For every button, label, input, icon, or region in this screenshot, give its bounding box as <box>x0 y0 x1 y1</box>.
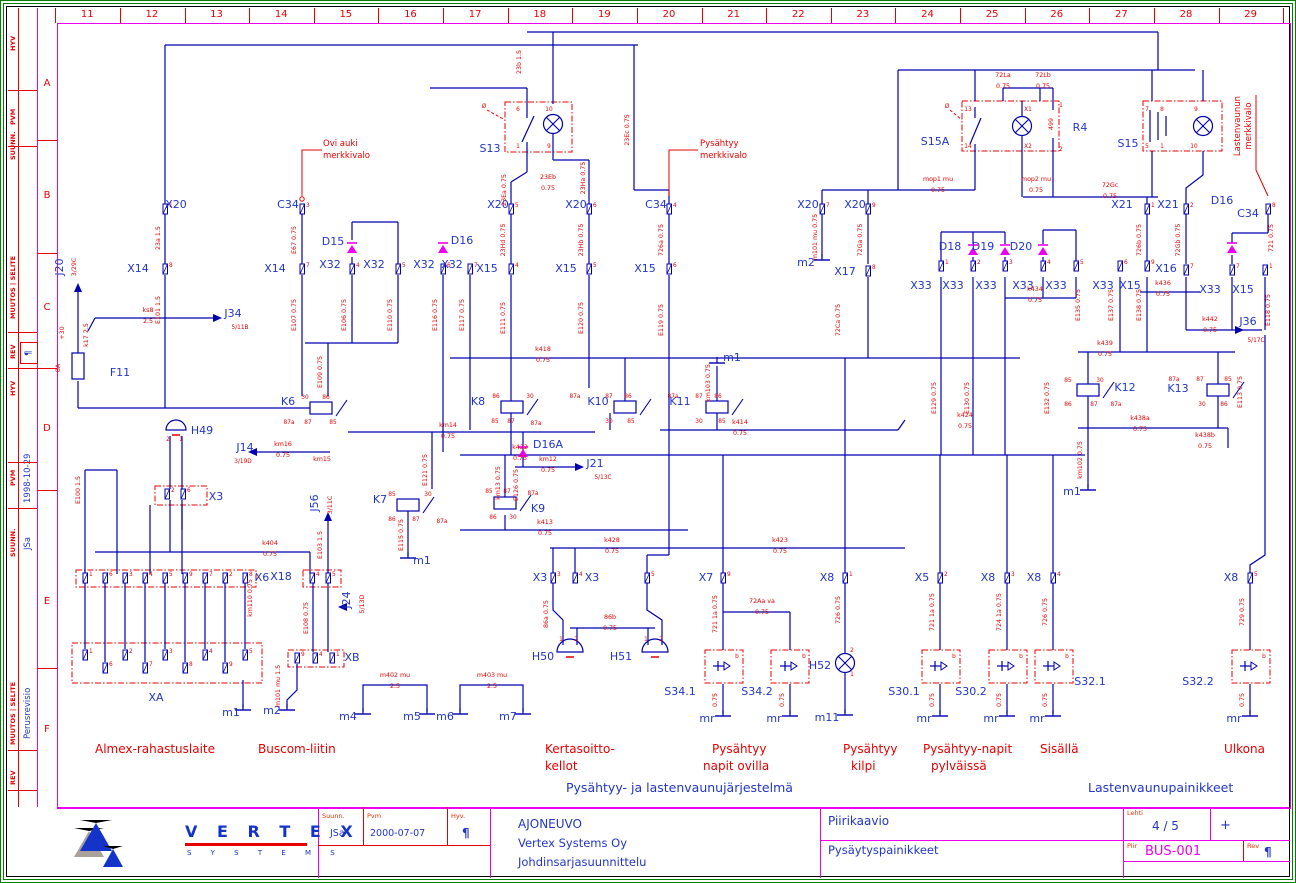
pin-number: 1 <box>1151 203 1155 209</box>
relay-name: K12 <box>1114 381 1135 394</box>
wire-label-rotated: 23Ha 0.75 <box>580 162 587 195</box>
wire-label-rotated: 0.75 <box>1042 693 1049 707</box>
wire-gauge: 0.75 <box>536 357 550 364</box>
wire-label-rotated: E110 0.75 <box>387 299 394 331</box>
pin-number: 9 <box>301 652 305 658</box>
pin-number: 4 <box>579 572 583 578</box>
pin-number: 8 <box>169 263 173 269</box>
pin-number: 4 <box>149 572 153 578</box>
pin-number: 3 <box>1009 260 1013 266</box>
pin-number: 1 <box>89 572 93 578</box>
tb-line <box>1210 807 1211 840</box>
pin-number: 5 <box>402 263 406 269</box>
tb-line <box>447 807 448 845</box>
relay-coil <box>1207 384 1229 396</box>
component-label: X5 <box>915 571 930 584</box>
component-label: X33 <box>942 279 964 292</box>
component-label: X18 <box>270 570 292 583</box>
relay-terminal: 87a <box>668 394 679 400</box>
relay-contact <box>732 399 743 415</box>
component-label: X3 <box>533 571 548 584</box>
pin-number: 4 <box>209 649 213 655</box>
relay-terminal: 87 <box>1196 377 1204 383</box>
wire-label-rotated: m101 mu 1.5 <box>275 665 282 707</box>
pushbutton-terminal: b <box>1019 654 1023 660</box>
wire-label-rotated: 0.75 <box>779 693 786 707</box>
component-label: D16 <box>1211 194 1233 207</box>
component-label: C34 <box>1237 207 1259 220</box>
piir-label: Piir <box>1127 842 1137 850</box>
wire-gauge: 0.75 <box>538 530 552 537</box>
relay-terminal: 86 <box>492 394 500 400</box>
annotation-caption-rotated: Lastenvaunun <box>1233 96 1243 156</box>
component-label: X20 <box>165 198 187 211</box>
relay-terminal: 85 <box>1064 378 1072 384</box>
pin-number: 7 <box>826 203 830 209</box>
doc-type: Piirikaavio <box>828 814 889 828</box>
pin-number: 6 <box>109 572 113 578</box>
terminal-number: X1 <box>1024 107 1032 113</box>
system-caption: Pysähtyy- ja lastenvaunujärjestelmä <box>566 780 793 795</box>
component-label: S32.1 <box>1074 675 1105 688</box>
wire-label-rotated: 3/29C <box>71 257 78 276</box>
relay-name: K13 <box>1167 382 1188 395</box>
pin-number: 1 <box>945 260 949 266</box>
component-label: X33 <box>910 279 932 292</box>
pushbutton-terminal: b <box>1065 654 1069 660</box>
wire-label-rotated: 23Ec 0.75 <box>624 114 631 145</box>
wire-label-rotated: E119 0.75 <box>658 304 665 336</box>
wire-name: k439 <box>1097 340 1113 347</box>
wire-label-rotated: 724 1a 0.75 <box>996 593 1003 631</box>
pin-number: 7 <box>1190 264 1194 270</box>
terminal-number: 6 <box>516 107 520 113</box>
wire-gauge: 0.75 <box>1036 83 1050 90</box>
component-label: X6 <box>255 571 270 584</box>
pin-number: 5 <box>1080 260 1084 266</box>
section-caption: Pysähtyy-napit <box>923 742 1012 756</box>
pin-number: 4 <box>1047 260 1051 266</box>
wire-label-rotated: E126 0.75 <box>513 469 520 501</box>
component-label: X8 <box>1224 571 1239 584</box>
pin-number: 2 <box>1190 203 1194 209</box>
pin-number: 2 <box>171 488 175 494</box>
relay-terminal: 87 <box>1090 402 1098 408</box>
pushbutton-terminal: b <box>802 654 806 660</box>
wire-label-rotated: E106 0.75 <box>341 299 348 331</box>
pin-number: 2 <box>944 572 948 578</box>
pin-number: 1 <box>89 649 93 655</box>
wire-gauge: 0.75 <box>605 548 619 555</box>
annotation-caption: merkkivalo <box>323 151 370 161</box>
pin-number: 9 <box>727 572 731 578</box>
pushbutton-head <box>1251 662 1257 670</box>
terminal-number: 1 <box>1059 103 1063 109</box>
wire-label-rotated: 721 0.75 <box>1268 224 1275 252</box>
component-label: D19 <box>972 240 994 253</box>
wire-label-rotated: 72Gb 0.75 <box>1175 224 1182 257</box>
wire-name: k422 <box>512 444 528 451</box>
jump-arrow <box>213 314 222 322</box>
ground-label: m4 <box>339 710 357 723</box>
component-label: XB <box>344 651 359 664</box>
component-dash-box <box>962 101 1059 151</box>
wire <box>511 172 527 182</box>
terminal-number: 1 <box>179 437 183 443</box>
relay-coil <box>1077 384 1099 396</box>
pin-number: 1 <box>336 652 340 658</box>
wire-label-rotated: 0.75 <box>1239 693 1246 707</box>
annotation-caption: Ovi auki <box>323 139 358 149</box>
pushbutton-terminal: b <box>952 654 956 660</box>
terminal-number: 7 <box>1145 107 1149 113</box>
pin-number: 4 <box>356 263 360 269</box>
relay-terminal: 86 <box>624 394 632 400</box>
ground-label: m1 <box>222 706 240 719</box>
relay-terminal: 86 <box>1064 402 1072 408</box>
relay-coil <box>501 401 523 413</box>
component-label: H50 <box>532 650 554 663</box>
wire-name: 86b <box>604 614 616 621</box>
company-line-3: Johdinsarjasuunnittelu <box>518 855 646 869</box>
annotation-caption: Pysähtyy <box>700 139 739 149</box>
terminal-number: 3/19D <box>234 459 252 465</box>
component-label: X15 <box>476 262 498 275</box>
diode-symbol <box>1038 247 1048 255</box>
leader-end-circle <box>300 197 304 201</box>
annotation-leader <box>669 150 698 196</box>
logo-sub-text: S Y S T E M S <box>187 849 343 857</box>
pvm-label: Pvm <box>367 812 381 820</box>
relay-terminal: 85 <box>1224 377 1232 383</box>
component-label: X32 <box>413 258 435 271</box>
lehti-label: Lehti <box>1127 809 1143 817</box>
ground-label: mr <box>983 712 999 725</box>
component-label-rotated: J56 <box>308 494 321 512</box>
piir-value: BUS-001 <box>1145 844 1201 859</box>
wire-label-rotated: 726 0.75 <box>835 596 842 624</box>
wire-label-rotated: 726a 0.75 <box>658 224 665 256</box>
pushbutton-terminal: b <box>735 654 739 660</box>
relay-coil <box>397 499 419 511</box>
relay-terminal: 86 <box>1220 402 1228 408</box>
tb-line <box>490 807 491 878</box>
terminal-number: 2 <box>850 648 854 654</box>
relay-terminal: 30 <box>1198 402 1206 408</box>
wire-gauge: 0.75 <box>541 185 555 192</box>
terminal-number: 10 <box>545 107 553 113</box>
component-label: X15 <box>634 262 656 275</box>
hyv-label: Hyv. <box>451 812 465 820</box>
wire-name: 72Gc <box>1102 182 1119 189</box>
wire-gauge: 0.75 <box>996 83 1010 90</box>
terminal-number: 9 <box>1194 107 1198 113</box>
relay-terminal: 85 <box>388 492 396 498</box>
pin-number: 9 <box>189 572 193 578</box>
component-label: X32 <box>441 258 463 271</box>
relay-contact <box>520 495 531 511</box>
terminal-number: 10 <box>1190 144 1198 150</box>
wire <box>522 116 534 142</box>
wire-label-rotated: 23Ea 0.75 <box>501 174 508 206</box>
component-label: X8 <box>820 571 835 584</box>
relay-terminal: 86 <box>714 394 722 400</box>
relay-terminal: 87a <box>437 519 448 525</box>
actuator-leader <box>950 110 962 120</box>
wire-name: m403 mu <box>477 672 507 679</box>
suunn-label: Suunn. <box>322 812 345 820</box>
component-label: H51 <box>610 650 632 663</box>
pin-number: 2 <box>229 572 233 578</box>
relay-terminal: 87 <box>605 394 613 400</box>
section-caption: Pysähtyy <box>843 742 897 756</box>
wire <box>553 583 563 645</box>
pin-number: 5 <box>332 572 336 578</box>
wire-name: k414 <box>732 419 748 426</box>
annotation-caption: merkkivalo <box>700 151 747 161</box>
wire-gauge: 0.75 <box>1156 291 1170 298</box>
component-label: D15 <box>322 235 344 248</box>
wire-label-rotated: m101 mu 0.75 <box>812 214 819 260</box>
pin-number: 7 <box>149 662 153 668</box>
pushbutton-head <box>791 662 797 670</box>
pin-number: 3 <box>169 649 173 655</box>
wire-name: mop1 mu <box>923 176 953 183</box>
wire-label-rotated: E101 1.5 <box>155 296 162 324</box>
schematic-canvas: 1356479128874567456812345697712616345972… <box>0 0 1296 883</box>
relay-coil <box>310 402 332 414</box>
system-caption: Lastenvaunupainikkeet <box>1088 780 1233 795</box>
wire-gauge: 0.75 <box>931 187 945 194</box>
component-label: J34 <box>223 307 241 320</box>
jump-arrow <box>74 283 82 292</box>
pin-number: 8 <box>872 265 876 271</box>
component-label: X20 <box>844 198 866 211</box>
wire-label-rotated: 0.75 <box>712 693 719 707</box>
component-label: X32 <box>319 258 341 271</box>
section-caption: Ulkona <box>1224 742 1265 756</box>
component-label: S34.2 <box>741 685 772 698</box>
component-label: D20 <box>1010 240 1032 253</box>
tb-line <box>318 807 319 878</box>
pin-number: 4 <box>515 263 519 269</box>
ground-label: m1 <box>723 351 741 364</box>
company-line-1: AJONEUVO <box>518 817 582 831</box>
wire-name: k424 <box>957 412 973 419</box>
wire-name: k418 <box>535 346 551 353</box>
wire-label-rotated: E113 0.75 <box>1237 376 1244 408</box>
wire <box>647 583 662 645</box>
annotation-leader <box>302 150 322 196</box>
ground-label: mr <box>916 712 932 725</box>
section-caption: Kertasoitto- <box>545 742 615 756</box>
relay-terminal: 87 <box>503 489 511 495</box>
pin-number: 8 <box>249 572 253 578</box>
pushbutton-head <box>724 662 730 670</box>
component-label: J14 <box>235 441 253 454</box>
pin-number: 6 <box>1124 260 1128 266</box>
actuator-leader <box>487 110 505 120</box>
component-label: S13 <box>480 142 501 155</box>
terminal-number: 1 <box>1160 144 1164 150</box>
terminal-number: 2 <box>659 637 663 643</box>
logo-triangle-small <box>103 846 123 867</box>
ground-label: mr <box>766 712 782 725</box>
wire-label-rotated: 23a 1.5 <box>155 226 162 250</box>
wire-name: k428 <box>604 537 620 544</box>
component-label: R4 <box>1073 121 1088 134</box>
wire-label-rotated: 499 <box>1048 118 1055 130</box>
wire-label-rotated: E120 0.75 <box>578 302 585 334</box>
doc-title: Pysäytyspainikkeet <box>828 843 939 857</box>
pin-number: 4 <box>1057 572 1061 578</box>
wire-label-rotated: E103 1.5 <box>317 531 324 559</box>
ground-label: m11 <box>815 711 840 724</box>
wire-label-rotated: E116 0.75 <box>432 299 439 331</box>
ground-label: mr <box>1029 712 1045 725</box>
terminal-number: 14 <box>964 144 972 150</box>
wire-gauge: 0.75 <box>773 548 787 555</box>
bell-symbol <box>166 420 186 430</box>
annotation-caption-rotated: merkkivalo <box>1244 102 1254 149</box>
wire-name: km15 <box>313 456 331 463</box>
wire-name: km16 <box>274 441 292 448</box>
component-label: D16 <box>451 234 473 247</box>
relay-terminal: 87 <box>412 517 420 523</box>
rev-value: ¶ <box>1264 845 1272 859</box>
wire-gauge: 2.5 <box>390 683 400 690</box>
wire-label-rotated: E137 0.75 <box>1108 289 1115 321</box>
wire-name: km14 <box>439 422 457 429</box>
company-line-2: Vertex Systems Oy <box>518 836 627 850</box>
relay-terminal: 30 <box>1096 378 1104 384</box>
relay-terminal: 87 <box>695 394 703 400</box>
rev-label: Rev <box>1247 842 1259 850</box>
relay-terminal: 87a <box>570 394 581 400</box>
wire-gauge: 2.5 <box>143 318 153 325</box>
relay-terminal: 87a <box>284 420 295 426</box>
jump-arrow <box>575 463 584 471</box>
relay-terminal: 85 <box>627 419 635 425</box>
wire-gauge: 0.75 <box>1198 443 1212 450</box>
wire-label-rotated: E117 0.75 <box>459 299 466 331</box>
drawing-sheet: 11121314151617181920212223242526272829 A… <box>0 0 1296 883</box>
wire-label-rotated: 72Ca 0.75 <box>835 304 842 336</box>
component-label: X20 <box>797 198 819 211</box>
relay-contact <box>336 400 347 416</box>
terminal-number: 1 <box>850 672 854 678</box>
terminal-number: 1 <box>644 637 648 643</box>
wire-name: 72La <box>995 72 1011 79</box>
wire-label-rotated: 86a 0.75 <box>543 600 550 628</box>
relay-terminal: 87 <box>507 419 515 425</box>
wire-name: 72Aa va <box>749 598 775 605</box>
wire-label-rotated: 5/13D <box>359 594 366 613</box>
component-label: X8 <box>981 571 996 584</box>
wire-name: k434 <box>1027 286 1043 293</box>
pin-number: 5 <box>1254 572 1258 578</box>
pin-number: 5 <box>249 649 253 655</box>
component-label: X7 <box>699 571 714 584</box>
component-label: S34.1 <box>664 685 695 698</box>
component-label: X16 <box>1155 262 1177 275</box>
component-label: X33 <box>975 279 997 292</box>
pin-number: 9 <box>872 203 876 209</box>
wire-label-rotated: E67 0.75 <box>291 226 298 254</box>
component-label: X14 <box>127 262 149 275</box>
terminal-number: 5/13C <box>594 475 611 481</box>
relay-contact <box>527 399 538 415</box>
component-label: X33 <box>1045 279 1067 292</box>
section-caption: napit ovilla <box>703 759 769 773</box>
wire-label-rotated: E109 0.75 <box>317 356 324 388</box>
relay-terminal: 86 <box>388 517 396 523</box>
pin-number: 4 <box>673 203 677 209</box>
terminal-number: 2 <box>1059 147 1063 153</box>
relay-terminal: 30 <box>605 419 613 425</box>
wire-gauge: 0.75 <box>1098 351 1112 358</box>
wire-label-rotated: 23b 1.5 <box>516 50 523 74</box>
pin-number: 3 <box>557 572 561 578</box>
wire-name: k438b <box>1195 432 1215 439</box>
component-label: C34 <box>277 198 299 211</box>
component-label: H52 <box>809 659 831 672</box>
wire-name: km12 <box>539 456 557 463</box>
component-label: S15A <box>921 135 950 148</box>
relay-terminal: 87 <box>304 420 312 426</box>
ground-label: m1 <box>413 554 431 567</box>
relay-terminal: 85 <box>329 420 337 426</box>
relay-terminal: 30 <box>526 394 534 400</box>
pin-number: 5 <box>593 263 597 269</box>
ground-label: mr <box>699 712 715 725</box>
terminal-number: 5/11B <box>232 325 249 331</box>
tb-line <box>1243 840 1244 861</box>
relay-terminal: 30 <box>509 515 517 521</box>
component-label: J36 <box>1238 315 1256 328</box>
tb-line <box>318 845 490 846</box>
section-caption: kilpi <box>851 759 876 773</box>
relay-terminal: 87a <box>1169 377 1180 383</box>
wire-label-rotated: k17 2.5 <box>83 323 90 347</box>
wire-gauge: 2.5 <box>487 683 497 690</box>
fuse-symbol <box>72 353 84 379</box>
pin-number: 4 <box>316 572 320 578</box>
relay-name: K7 <box>373 493 387 506</box>
component-label: X14 <box>264 262 286 275</box>
relay-terminal: 85 <box>718 419 726 425</box>
wire-label-rotated: E115 0.75 <box>398 519 405 551</box>
pin-number: 3 <box>306 203 310 209</box>
component-label: S30.2 <box>955 685 986 698</box>
relay-terminal: 86 <box>322 395 330 401</box>
wire-label-rotated: 726 0.75 <box>1042 598 1049 626</box>
pin-number: 1 <box>1269 264 1273 270</box>
pin-number: 6 <box>593 203 597 209</box>
pin-number: 6 <box>187 488 191 494</box>
component-label: D18 <box>939 240 961 253</box>
relay-name: K9 <box>531 502 545 515</box>
wire-label-rotated: km13 0.75 <box>495 466 502 500</box>
wire-label-rotated: E135 0.75 <box>1075 289 1082 321</box>
wire <box>898 420 905 430</box>
wire-label-rotated: +30 <box>59 326 66 339</box>
component-label-rotated: J24 <box>340 591 353 609</box>
wire-name: k436 <box>1155 280 1171 287</box>
wire-label-rotated: E118 0.75 <box>1265 294 1272 326</box>
ground-label: m7 <box>499 710 517 723</box>
relay-terminal: 85 <box>485 489 493 495</box>
